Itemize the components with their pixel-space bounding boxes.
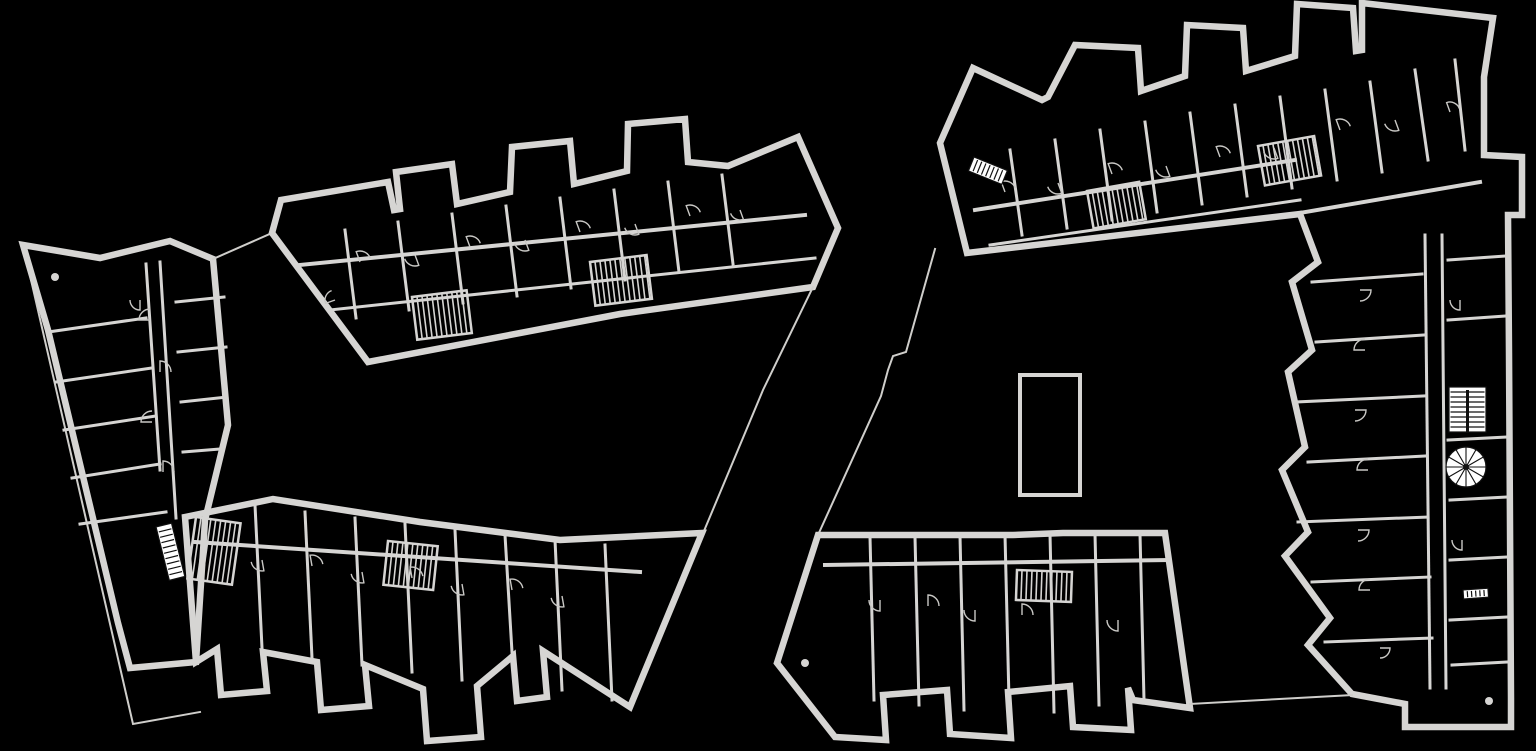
door-swing-arc [310, 555, 323, 566]
door-swing-arc [1380, 648, 1390, 658]
hatch-line [1021, 570, 1022, 600]
west-lower-cross-wall [505, 535, 512, 652]
hatch-line [452, 292, 457, 335]
hatch-line [600, 261, 605, 305]
east-top-cross-wall [1370, 82, 1382, 172]
east-right-room-wall [1312, 577, 1430, 582]
east-right-room-wall [1295, 396, 1424, 402]
east-top-bottom-wall [1300, 182, 1480, 213]
east-top-cross-wall [1190, 113, 1202, 204]
east-bottom-wing-core-1-outline [1016, 570, 1072, 602]
hatch-line [442, 293, 447, 336]
door-swing-arc [1452, 540, 1462, 550]
east-top-cross-wall [1055, 140, 1067, 228]
hatch-line [432, 295, 437, 338]
west-left-block-perimeter [23, 241, 228, 668]
hatch-line [1031, 571, 1032, 601]
east-right-room-wall [1450, 497, 1508, 500]
door-swing-arc [1358, 530, 1369, 541]
hatch-line [423, 545, 428, 589]
west-upper-cross-wall [452, 214, 463, 303]
door-swing-arc [686, 205, 700, 216]
east-top-wing-stair-flight [968, 157, 1007, 184]
east-right-wing-spiral-stair [1446, 447, 1486, 487]
east-building [777, 3, 1522, 740]
east-right-room-wall [1450, 557, 1508, 560]
west-lower-cross-wall [255, 505, 262, 648]
hatch-line [1051, 571, 1052, 601]
hatch-line [1026, 570, 1027, 600]
hatch-line [207, 520, 216, 581]
door-swing-arc [1355, 410, 1366, 421]
door-swing-arc [1216, 146, 1230, 157]
east-right-corridor-wall [1425, 235, 1430, 688]
east-right-room-wall [1312, 274, 1422, 282]
hatch-line [428, 546, 433, 590]
east-top-cross-wall [1415, 70, 1428, 160]
door-swing-arc [130, 300, 140, 310]
west-lower-cross-wall [455, 530, 462, 680]
east-bottom-spine-wall [825, 560, 1168, 565]
west-block-room-wall [183, 449, 220, 452]
west-building [23, 119, 838, 741]
east-right-room-wall [1448, 316, 1506, 320]
east-bottom-wing-core-1-hatch [1016, 570, 1072, 602]
west-block-room-wall [72, 464, 160, 478]
door-swing-arc [1107, 620, 1118, 631]
hatch-line [437, 294, 442, 337]
hatch-line [595, 261, 600, 305]
east-bottom-cross-wall [1005, 535, 1009, 700]
door-swing-arc [964, 610, 975, 621]
west-upper-cross-wall [398, 222, 409, 310]
west-block-corridor-wall [160, 262, 176, 518]
west-left-block-partitions [48, 262, 227, 524]
east-right-room-wall [1316, 335, 1424, 342]
east-top-wing-core-1-hatch [1087, 182, 1146, 229]
west-lower-cross-wall [555, 540, 562, 690]
west-lower-wing-core-1-hatch [187, 517, 240, 585]
spiral-newel [1463, 464, 1469, 470]
west-upper-cross-wall [506, 206, 517, 296]
east-right-corridor-wall-2 [1442, 235, 1446, 688]
east-top-cross-wall [1010, 150, 1022, 235]
east-right-room-wall [1450, 617, 1508, 620]
door-swing-arc [731, 210, 744, 220]
east-courtyard-rectangle [1020, 375, 1080, 495]
east-top-cross-wall [1145, 122, 1157, 212]
structural-column [801, 659, 809, 667]
east-main-perimeter [940, 3, 1522, 727]
hatch-line [605, 260, 610, 304]
west-block-room-wall [181, 397, 227, 402]
east-right-room-wall [1298, 517, 1428, 522]
west-upper-cross-wall [560, 198, 571, 288]
east-top-cross-wall [1235, 105, 1247, 196]
hatch-line [422, 296, 427, 339]
west-lower-wing-perimeter [185, 499, 702, 741]
door-swing-arc [1447, 102, 1460, 112]
hatch-line [212, 520, 221, 581]
hatch-line [417, 296, 422, 339]
west-upper-wing-core-1-hatch [412, 290, 472, 339]
east-bottom-thin-line [1190, 695, 1352, 704]
hatch-line [427, 295, 432, 338]
east-right-room-wall [1452, 662, 1508, 665]
east-right-room-wall [1448, 437, 1508, 440]
west-lower-wing-stair-flight [156, 523, 185, 580]
east-bottom-wing-partitions [825, 534, 1168, 712]
hatch-line [398, 543, 403, 587]
hatch-line [222, 522, 231, 583]
hatch-line [393, 542, 398, 586]
west-upper-cross-wall [345, 230, 356, 318]
floor-plan-canvas [0, 0, 1536, 751]
door-swing-arc [1360, 290, 1371, 301]
west-upper-cross-wall [722, 175, 733, 264]
door-swing-arc [1022, 604, 1033, 615]
hatch-line [447, 293, 452, 336]
west-block-room-wall [56, 368, 152, 382]
hatch-line [413, 544, 418, 588]
door-swing-arc [405, 255, 419, 266]
hatch-line [1056, 571, 1057, 601]
east-top-cross-wall [1325, 90, 1337, 180]
east-right-room-wall [1448, 256, 1506, 260]
hatch-line [1041, 571, 1042, 601]
door-swing-arc [1336, 119, 1350, 130]
west-link-line [213, 233, 272, 259]
east-right-wing-double-stair [1449, 387, 1486, 432]
door-swing-arc [1108, 163, 1122, 174]
door-swing-arc [510, 579, 523, 590]
east-bottom-cross-wall [870, 537, 874, 700]
door-swing-arc [928, 595, 939, 606]
east-right-room-wall [1325, 638, 1432, 642]
hatch-line [1046, 571, 1047, 601]
hatch-line [217, 521, 226, 582]
hatch-line [1036, 571, 1037, 601]
hatch-line [462, 291, 467, 334]
structural-column [51, 273, 59, 281]
hatch-line [408, 544, 413, 588]
hatch-line [418, 545, 423, 589]
hatch-line [388, 542, 393, 586]
west-lower-cross-wall [355, 518, 362, 665]
east-right-wing-stair-flight [1463, 588, 1489, 599]
west-lower-cross-wall [405, 524, 412, 672]
floor-plan-stage [0, 0, 1536, 751]
door-swing-arc [1450, 300, 1460, 310]
door-swing-arc [1385, 120, 1399, 131]
hatch-line [1066, 572, 1067, 602]
structural-column [1485, 697, 1493, 705]
door-swing-arc [576, 221, 590, 232]
west-courtyard-diagonal-line [704, 287, 813, 531]
hatch-line [1061, 572, 1062, 602]
west-lower-wing-core-2-hatch [383, 541, 437, 590]
door-swing-arc [1156, 166, 1170, 177]
columns-layer [51, 273, 1493, 705]
west-lower-cross-wall [305, 512, 312, 658]
west-block-room-wall [48, 318, 146, 332]
